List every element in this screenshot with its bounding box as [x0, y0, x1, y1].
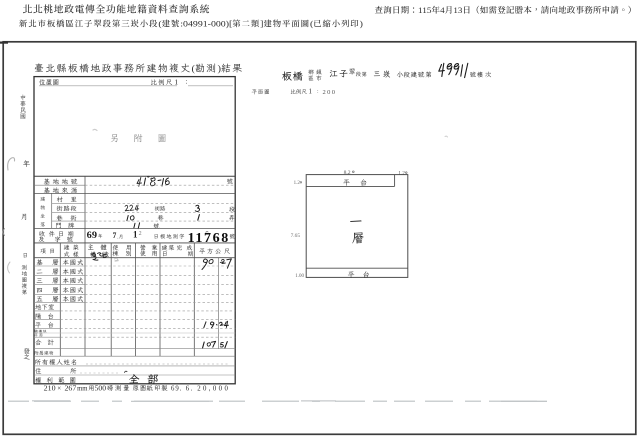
svg-text:13: 13: [453, 5, 463, 15]
svg-text:4: 4: [440, 5, 445, 15]
svg-text:6.: 6.: [186, 386, 194, 393]
svg-text:1: 1: [174, 78, 178, 87]
svg-text:7: 7: [113, 230, 117, 240]
svg-text:1.00: 1.00: [295, 274, 304, 279]
svg-text:.: .: [117, 235, 118, 240]
svg-text:]: ]: [260, 19, 263, 29]
svg-text:115: 115: [418, 5, 432, 15]
svg-text:1.2: 1.2: [398, 171, 405, 177]
svg-text:210: 210: [44, 385, 56, 393]
svg-text:200: 200: [323, 89, 337, 96]
svg-text:8.2: 8.2: [344, 170, 351, 176]
svg-text::04991-000)[: :04991-000)[: [180, 19, 232, 29]
svg-text:500: 500: [95, 385, 107, 393]
svg-text:267: 267: [65, 385, 77, 393]
svg-text:1: 1: [133, 229, 138, 239]
svg-text:2: 2: [139, 231, 142, 237]
svg-text:mm: mm: [77, 385, 88, 393]
svg-text:×: ×: [57, 385, 61, 393]
svg-text:): ): [360, 19, 363, 29]
svg-text:69: 69: [87, 230, 98, 240]
svg-text:1: 1: [309, 88, 313, 96]
svg-text:(: (: [310, 19, 313, 29]
svg-text:(: (: [158, 19, 161, 29]
svg-text:20,000: 20,000: [197, 386, 230, 393]
svg-text:69.: 69.: [171, 386, 183, 393]
svg-text:(: (: [192, 64, 196, 74]
svg-text:): ): [218, 64, 222, 74]
svg-text:7.65: 7.65: [291, 233, 301, 239]
svg-text:1.2: 1.2: [294, 181, 301, 186]
